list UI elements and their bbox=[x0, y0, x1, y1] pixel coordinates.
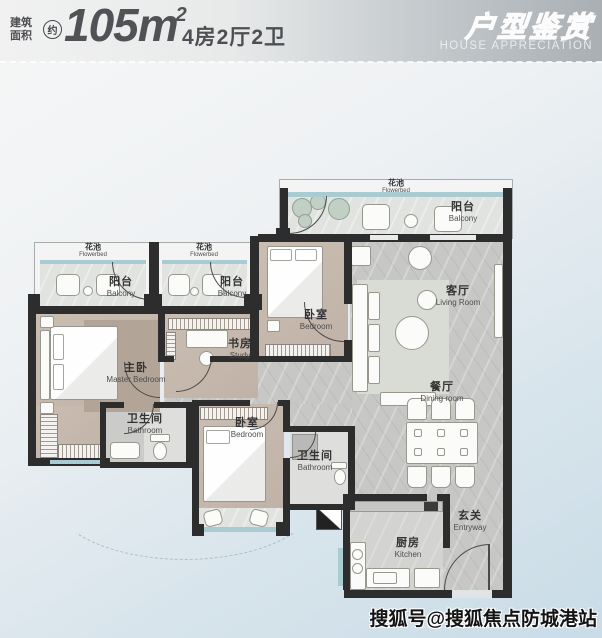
place-setting-icon bbox=[414, 448, 422, 456]
flowerbed-left2-label: 花池Flowerbed bbox=[188, 242, 221, 259]
desk-icon bbox=[186, 330, 228, 348]
plant-icon bbox=[328, 198, 350, 220]
approx-badge: 约 bbox=[43, 20, 62, 39]
column bbox=[192, 524, 204, 536]
wall bbox=[344, 242, 352, 304]
wall bbox=[343, 494, 350, 590]
place-setting-icon bbox=[437, 448, 445, 456]
wall bbox=[192, 400, 199, 536]
column bbox=[28, 294, 40, 312]
chair-icon bbox=[168, 274, 190, 296]
fridge-icon bbox=[414, 568, 440, 588]
place-setting-icon bbox=[414, 429, 422, 437]
toilet-tank-icon bbox=[150, 434, 170, 442]
banner-title-en: HOUSE APPRECIATION bbox=[440, 40, 593, 52]
page: 建筑 面积 约 105m2 4房2厅2卫 户型鉴赏 HOUSE APPRECIA… bbox=[0, 0, 602, 638]
entryway-label: 玄关Entryway bbox=[454, 510, 487, 532]
floor-plan: 花池Flowerbed 阳台Balcony 花池Flowerbed 阳台Balc… bbox=[0, 0, 602, 638]
nightstand-icon bbox=[40, 316, 54, 328]
master-window bbox=[50, 460, 100, 464]
wall bbox=[28, 306, 36, 466]
nightstand-icon bbox=[267, 320, 280, 332]
coffee-table-icon bbox=[395, 316, 429, 350]
bedroom-top-label: 卧室Bedroom bbox=[300, 309, 332, 331]
column bbox=[276, 228, 290, 240]
sofa-cushion-icon bbox=[368, 292, 380, 320]
wall bbox=[283, 426, 355, 432]
dining-room-label: 餐厅Dining room bbox=[420, 381, 463, 403]
sofa-cushion-icon bbox=[368, 356, 380, 384]
dining-chair-icon bbox=[431, 466, 451, 488]
entry-door-leaf bbox=[488, 544, 490, 590]
pillow-icon bbox=[295, 249, 317, 261]
coffee-table-icon bbox=[417, 290, 437, 310]
area-figure: 105m2 bbox=[64, 0, 188, 52]
bathroom2-label: 卫生间Bathroom bbox=[297, 450, 333, 472]
toilet-icon bbox=[153, 442, 167, 460]
layout-spec: 4房2厅2卫 bbox=[182, 21, 286, 51]
column bbox=[244, 294, 262, 310]
balcony-left1-label: 阳台Balcony bbox=[107, 276, 135, 298]
balcony-left2-label: 阳台Balcony bbox=[218, 276, 246, 298]
nightstand-icon bbox=[40, 402, 54, 414]
headboard-icon bbox=[40, 330, 50, 400]
area-label-line2: 面积 bbox=[10, 30, 32, 42]
side-table-icon bbox=[190, 287, 199, 296]
bedroom-bottom-label: 卧室Bedroom bbox=[231, 417, 263, 439]
sofa-icon bbox=[352, 284, 368, 392]
watermark: 搜狐号@搜狐焦点防城港站 bbox=[369, 604, 597, 631]
bookshelf-icon bbox=[168, 318, 254, 330]
flowerbed-top-label: 花池Flowerbed bbox=[380, 178, 413, 195]
area-label-line1: 建筑 bbox=[10, 17, 32, 29]
stove-burner-icon bbox=[352, 549, 363, 560]
wall bbox=[443, 494, 450, 548]
toilet-tank-icon bbox=[331, 462, 347, 469]
wall bbox=[343, 494, 427, 501]
area-label: 建筑 面积 bbox=[10, 17, 32, 43]
kitchen-label: 厨房Kitchen bbox=[395, 537, 422, 559]
plant-icon bbox=[408, 246, 432, 270]
dining-chair-icon bbox=[455, 466, 475, 488]
sink-icon bbox=[110, 442, 140, 459]
pillow-icon bbox=[206, 430, 230, 444]
wall bbox=[158, 314, 165, 362]
stove-burner-icon bbox=[352, 563, 363, 574]
cooktop-hood-icon bbox=[424, 502, 438, 511]
place-setting-icon bbox=[437, 429, 445, 437]
pillow-icon bbox=[270, 249, 292, 261]
column bbox=[276, 522, 290, 536]
entry-door-opening bbox=[452, 590, 492, 598]
chair-icon bbox=[362, 204, 390, 230]
bathroom1-label: 卫生间Bathroom bbox=[127, 413, 163, 435]
wall bbox=[28, 306, 258, 314]
window-opening bbox=[370, 235, 398, 240]
pillow-icon bbox=[53, 334, 64, 360]
kitchen-window bbox=[338, 548, 343, 586]
tv-icon bbox=[494, 264, 503, 338]
balcony-top-label: 阳台Balcony bbox=[449, 201, 477, 223]
study-label: 书房Study bbox=[228, 338, 252, 360]
column bbox=[144, 294, 162, 310]
toilet-icon bbox=[334, 469, 346, 485]
side-table-icon bbox=[404, 214, 418, 228]
wall bbox=[192, 400, 250, 406]
dining-chair-icon bbox=[407, 466, 427, 488]
window-opening bbox=[430, 235, 476, 240]
chair-icon bbox=[56, 274, 80, 296]
kitchen-sink-icon bbox=[373, 572, 397, 584]
dashed-separator bbox=[0, 61, 602, 63]
terrace-window bbox=[199, 527, 283, 532]
wall bbox=[100, 402, 106, 468]
living-room-label: 客厅Living Room bbox=[436, 285, 480, 307]
wall bbox=[100, 462, 193, 468]
wall bbox=[503, 188, 512, 590]
master-bedroom-label: 主卧Master Bedroom bbox=[106, 362, 165, 384]
side-table-icon bbox=[83, 286, 93, 296]
wardrobe-icon bbox=[40, 414, 58, 458]
place-setting-icon bbox=[460, 448, 468, 456]
sofa-cushion-icon bbox=[368, 324, 380, 352]
place-setting-icon bbox=[460, 429, 468, 437]
pillow-icon bbox=[53, 364, 64, 390]
cabinet-icon bbox=[351, 246, 371, 266]
flowerbed-left1-label: 花池Flowerbed bbox=[77, 242, 110, 259]
